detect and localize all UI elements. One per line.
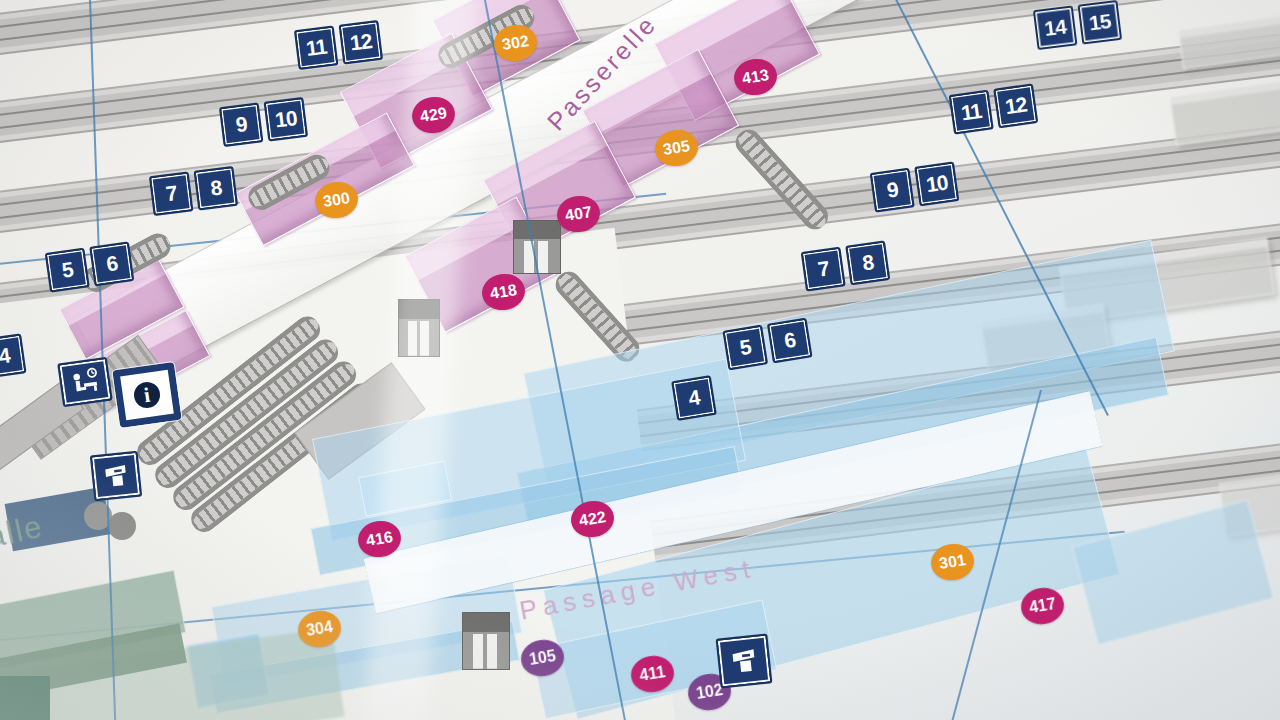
platform-number: 10 <box>264 97 309 142</box>
station-map-photo: { "scene": { "description": "Printed rai… <box>0 0 1280 720</box>
platform-number: 5 <box>45 248 90 293</box>
platform-number: 7 <box>149 171 194 216</box>
platform-number: 7 <box>801 247 846 292</box>
platform-number: 12 <box>339 20 384 65</box>
hall-teal-box <box>0 676 50 720</box>
platform-number: 14 <box>1033 5 1078 50</box>
platform-number: 6 <box>767 318 813 364</box>
elevator <box>398 299 440 357</box>
ticket-machine-glyph <box>100 460 133 493</box>
pillar <box>108 512 136 540</box>
platform-number: 12 <box>993 83 1038 128</box>
platform-number: 10 <box>914 161 959 206</box>
platform-number: 9 <box>870 168 915 213</box>
waiting-room-icon <box>57 357 113 408</box>
information-icon: i <box>112 362 181 428</box>
platform-number: 4 <box>671 375 717 421</box>
platform-number: 6 <box>89 241 134 286</box>
platform-number: 15 <box>1078 0 1123 45</box>
ticket-machine-icon <box>90 451 143 502</box>
platform-number: 8 <box>194 166 239 211</box>
platform-sign-4-right: 4 <box>671 375 717 421</box>
ticket-machine-glyph <box>726 643 761 678</box>
platform-number: 9 <box>219 102 264 147</box>
elevator <box>462 612 510 670</box>
platform-number: 8 <box>845 240 890 285</box>
information-glyph: i <box>132 380 161 409</box>
platform-number: 5 <box>722 325 768 371</box>
platform-number: 11 <box>949 90 994 135</box>
waiting-room-glyph <box>66 365 104 399</box>
platform-number: 11 <box>294 25 339 70</box>
ticket-machine-icon <box>716 633 773 688</box>
